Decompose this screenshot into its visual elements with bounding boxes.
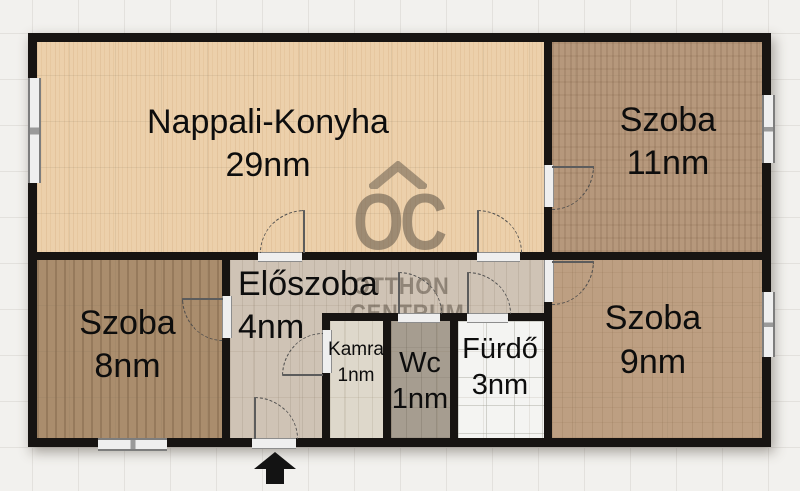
room-area: 1nm (386, 381, 454, 417)
room-name: Wc (386, 345, 454, 381)
room-area: 29nm (108, 144, 428, 187)
window-nappali-left (28, 78, 41, 183)
door-frame-nappali-corridor (477, 252, 520, 262)
wall-szoba8-eloszoba (222, 260, 230, 438)
window-szoba9-right (762, 292, 775, 357)
door-frame-nappali-eloszoba (258, 252, 302, 262)
room-name: Szoba (553, 296, 753, 340)
door-frame-furdo (467, 313, 508, 323)
room-label-szoba-11: Szoba 11nm (568, 99, 768, 185)
room-label-kamra: Kamra 1nm (324, 337, 388, 389)
entrance-arrow-stem (266, 468, 284, 484)
room-area: 1nm (324, 363, 388, 389)
room-area: 11nm (568, 142, 768, 185)
room-area: 9nm (553, 340, 753, 384)
room-area: 8nm (35, 345, 220, 388)
room-label-wc: Wc 1nm (386, 345, 454, 417)
door-frame-entrance (252, 438, 296, 449)
wall-outer-top (28, 33, 771, 42)
window-szoba8-bottom (98, 438, 167, 451)
room-name: Fürdő (452, 331, 548, 367)
room-name: Szoba (35, 302, 220, 345)
room-label-nappali-konyha: Nappali-Konyha 29nm (108, 101, 428, 187)
room-name: Előszoba (238, 263, 458, 306)
door-frame-szoba8 (222, 296, 232, 338)
room-area: 3nm (452, 367, 548, 403)
room-label-szoba-9: Szoba 9nm (553, 296, 753, 384)
wall-horizontal-main (37, 252, 762, 260)
room-name: Nappali-Konyha (108, 101, 428, 144)
floor-plan: OC OTTHON CENTRUM Nappali-Konyha 29nm Sz… (0, 0, 800, 491)
room-name: Kamra (324, 337, 388, 363)
room-label-furdo: Fürdő 3nm (452, 331, 548, 403)
entrance-arrow-icon (254, 452, 296, 469)
room-label-szoba-8: Szoba 8nm (35, 302, 220, 388)
room-name: Szoba (568, 99, 768, 142)
